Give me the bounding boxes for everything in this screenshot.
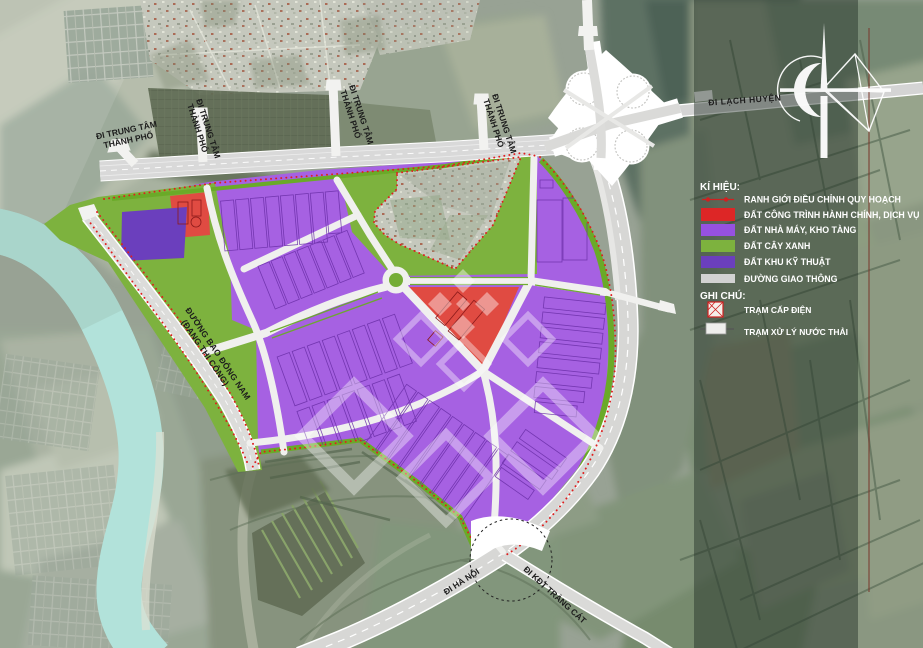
svg-text:TRẠM CẤP ĐIỆN: TRẠM CẤP ĐIỆN (744, 304, 811, 315)
svg-text:GHI CHÚ:: GHI CHÚ: (700, 289, 746, 302)
svg-text:ĐẤT CÔNG TRÌNH HÀNH CHÍNH, DỊC: ĐẤT CÔNG TRÌNH HÀNH CHÍNH, DỊCH VỤ (744, 209, 919, 220)
svg-text:KÍ HIỆU:: KÍ HIỆU: (700, 180, 740, 193)
svg-text:TRẠM XỬ LÝ NƯỚC THẢI: TRẠM XỬ LÝ NƯỚC THẢI (744, 326, 848, 337)
svg-text:ĐẤT CÂY XANH: ĐẤT CÂY XANH (744, 240, 810, 251)
svg-text:ĐƯỜNG GIAO THÔNG: ĐƯỜNG GIAO THÔNG (744, 273, 838, 284)
svg-text:ĐẤT NHÀ MÁY, KHO TÀNG: ĐẤT NHÀ MÁY, KHO TÀNG (744, 225, 857, 235)
svg-text:RANH GIỚI ĐIỀU CHỈNH QUY HOẠCH: RANH GIỚI ĐIỀU CHỈNH QUY HOẠCH (744, 194, 901, 205)
svg-text:ĐẤT KHU KỸ THUẬT: ĐẤT KHU KỸ THUẬT (744, 256, 831, 267)
